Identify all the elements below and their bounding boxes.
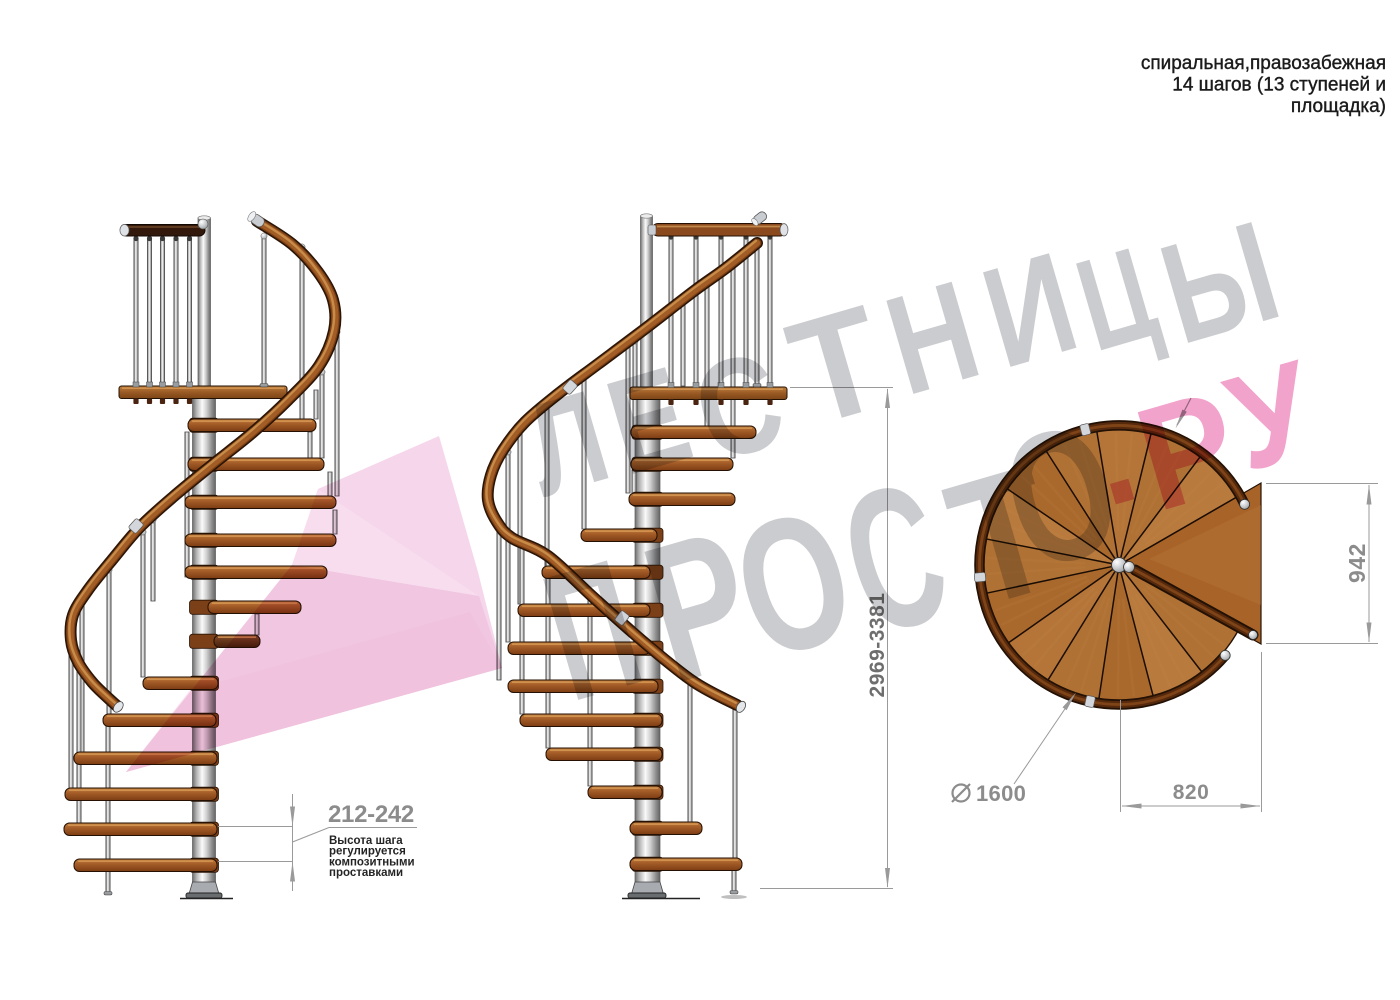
svg-text:Высота шагарегулируетсякомпози: Высота шагарегулируетсякомпозитнымипрост…	[329, 835, 415, 879]
svg-text:1600: 1600	[976, 781, 1026, 806]
svg-text:спиральная,правозабежная: спиральная,правозабежная	[1141, 53, 1386, 74]
svg-text:212-242: 212-242	[328, 801, 414, 828]
svg-text:14 шагов (13 ступеней и: 14 шагов (13 ступеней и	[1172, 75, 1386, 96]
svg-text:820: 820	[1173, 781, 1210, 804]
svg-text:площадка): площадка)	[1291, 96, 1386, 117]
svg-text:942: 942	[1344, 543, 1370, 583]
